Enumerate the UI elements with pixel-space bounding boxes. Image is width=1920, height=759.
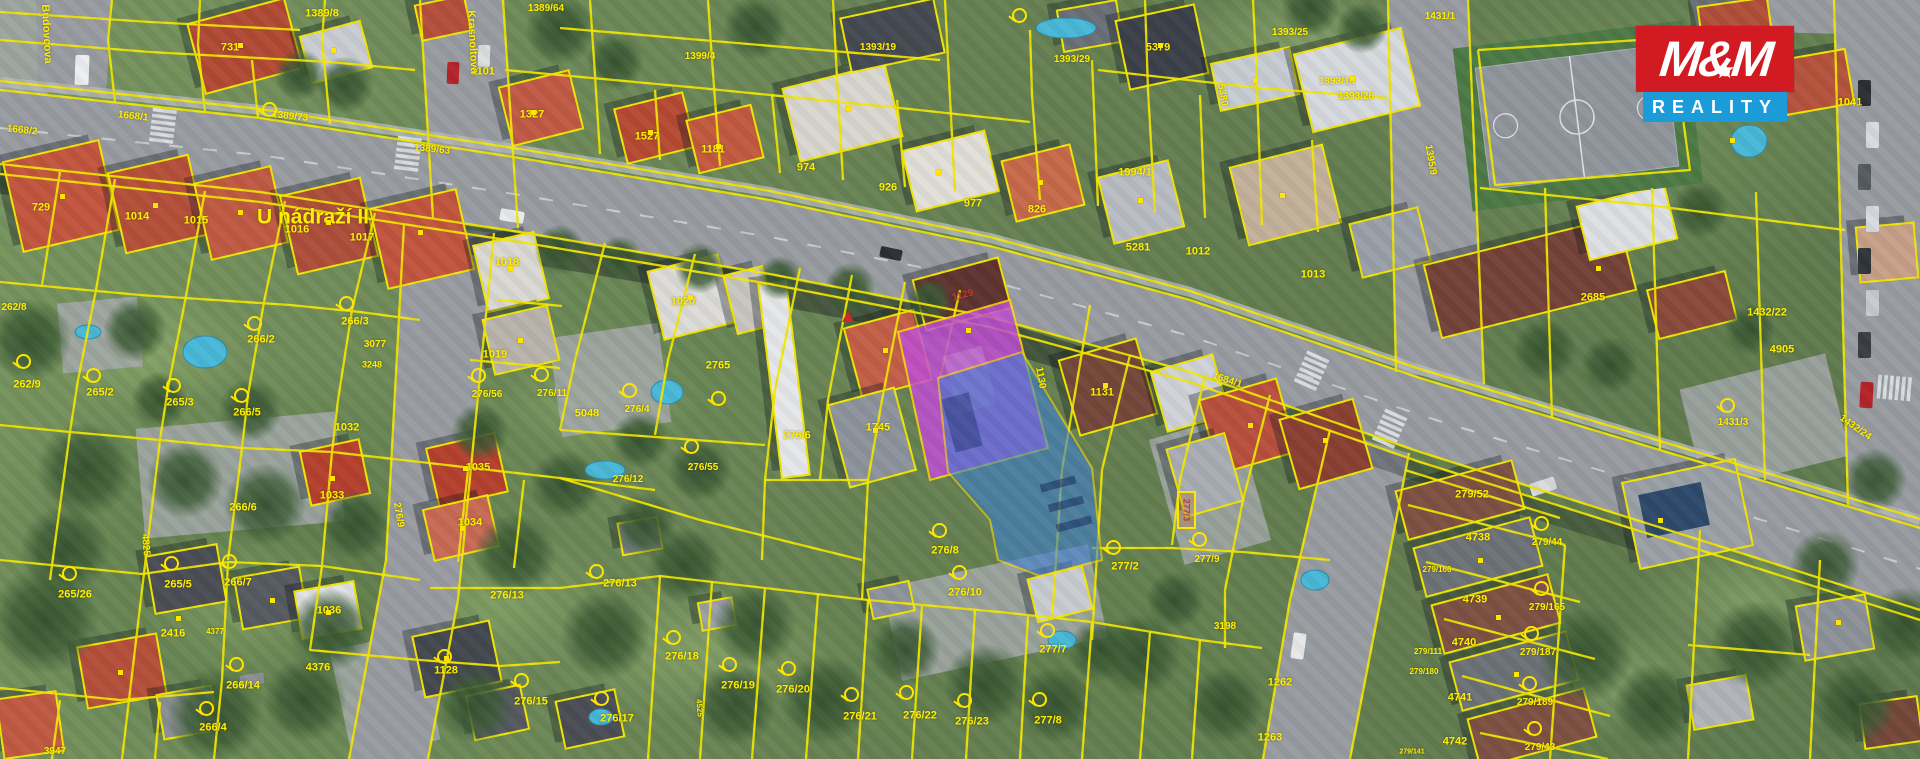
logo-red-box: M&M ★ [1636, 26, 1794, 92]
map-canvas[interactable]: 1389/873111011389/731389/631389/64132715… [0, 0, 1920, 759]
aerial-photo-layer [0, 0, 1920, 759]
star-icon: ★ [1714, 56, 1736, 85]
mm-reality-logo: M&M ★ REALITY [1636, 26, 1794, 122]
logo-reality-text: REALITY [1643, 92, 1787, 122]
